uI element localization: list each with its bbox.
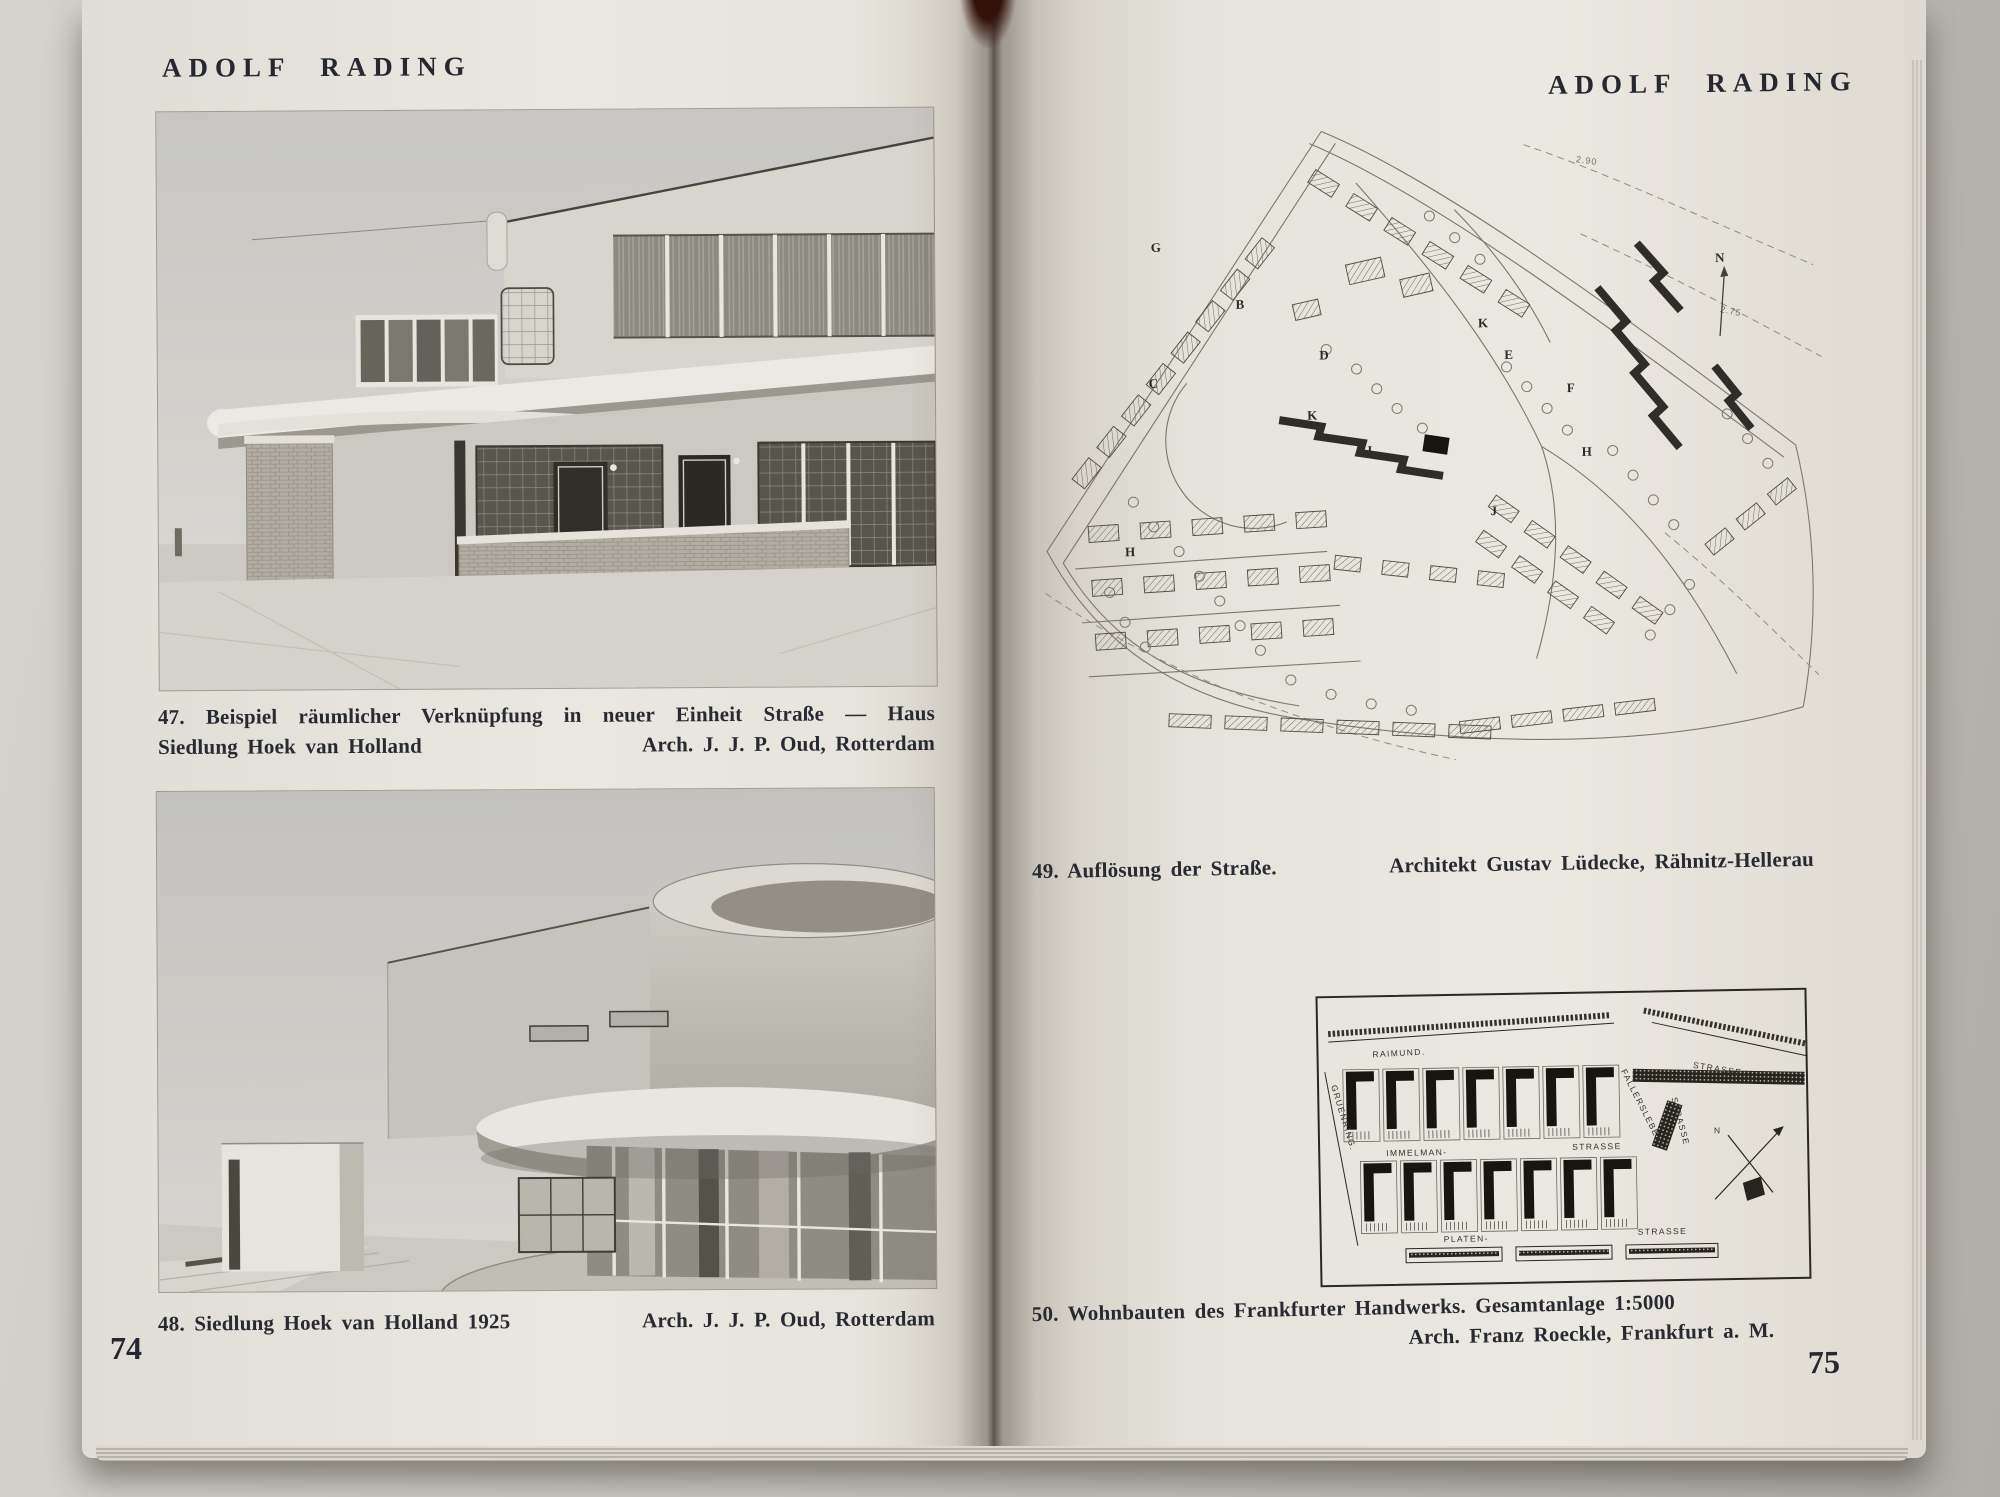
page-number-75: 75 [1808,1344,1841,1382]
solid-black-building [1422,434,1449,454]
upper-window-band-left [355,314,497,387]
block-letter: K [1478,315,1489,330]
photo-fig47-siedlung-hoek-van-holland [156,108,937,691]
fig50-drawing: RAIMUND. STRASSE IMMELMAN- STRASSE PLATE… [1313,986,1814,1291]
photo-fig48-curved-building [157,788,937,1292]
fig47-illustration [156,108,937,691]
block-letter: E [1504,347,1513,362]
caption-fig47-title: Siedlung Hoek van Holland [158,731,422,762]
pavement [159,566,937,691]
caption-fig47-architect: Arch. J. J. P. Oud, Rotterdam [642,728,935,760]
running-header-left: ADOLF RADING [162,51,472,84]
caption-fig48: 48. Siedlung Hoek van Holland 1925 Arch.… [158,1303,935,1338]
block-letter: J [1490,503,1497,518]
contour-label: 2.75 [1719,304,1742,318]
caption-fig47-line1: 47. Beispiel räumlicher Verknüpfung in n… [158,698,935,732]
block-letter: K [1307,408,1318,423]
page-edges-right [1910,60,1922,1440]
fig48-illustration [157,788,937,1292]
upper-window-band-right [613,234,935,338]
housing-row-1 [1343,1065,1620,1142]
block-letter: D [1319,347,1329,362]
caption-fig48-architect: Arch. J. J. P. Oud, Rotterdam [642,1303,935,1335]
north-label: N [1715,250,1725,265]
block-letter: B [1236,297,1245,312]
plan-border [1317,989,1811,1286]
caption-fig47: 47. Beispiel räumlicher Verknüpfung in n… [158,698,935,762]
block-letter: H [1125,544,1135,559]
page-number-74: 74 [110,1330,142,1367]
page-edges-bottom [96,1446,1908,1461]
paned-window [519,1178,615,1253]
caption-fig47-line2: Siedlung Hoek van Holland Arch. J. J. P.… [158,728,935,762]
caption-fig49-title: 49. Auflösung der Straße. [1032,852,1277,886]
block-letter: C [1149,376,1159,391]
housing-row-2 [1360,1157,1637,1234]
block-letter: G [1151,240,1161,255]
site-plan-fig49: G B D K E K C J H J H F 2.90 2.75 N [1023,112,1839,835]
small-cube-building [222,1143,365,1272]
running-header-right: ADOLF RADING [1548,66,1858,101]
balcony-mesh-panel [501,288,553,364]
street-label-strasse-mid: STRASSE [1572,1141,1622,1152]
housing-blocks [1068,163,1800,745]
block-letter: J [1366,443,1373,458]
street-label-raimund: RAIMUND. [1372,1047,1426,1060]
north-arrow-icon: N [1715,250,1729,336]
photographed-book-spread: ADOLF RADING [0,0,2000,1497]
contour-label: 2.90 [1575,154,1598,167]
street-label-strasse-bottom: STRASSE [1638,1226,1688,1237]
street-label-immelman: IMMELMAN- [1386,1147,1447,1158]
block-letter: H [1582,444,1592,459]
site-plan-fig50: RAIMUND. STRASSE IMMELMAN- STRASSE PLATE… [1313,986,1814,1291]
bottom-strips [1406,1243,1718,1262]
fig49-drawing: G B D K E K C J H J H F 2.90 2.75 N [1023,112,1839,835]
contour-lines [1039,141,1826,766]
caption-fig48-title: 48. Siedlung Hoek van Holland 1925 [158,1306,511,1338]
street-label-platen: PLATEN- [1444,1233,1489,1244]
north-label: N [1714,1125,1722,1135]
block-letter: F [1567,380,1575,395]
